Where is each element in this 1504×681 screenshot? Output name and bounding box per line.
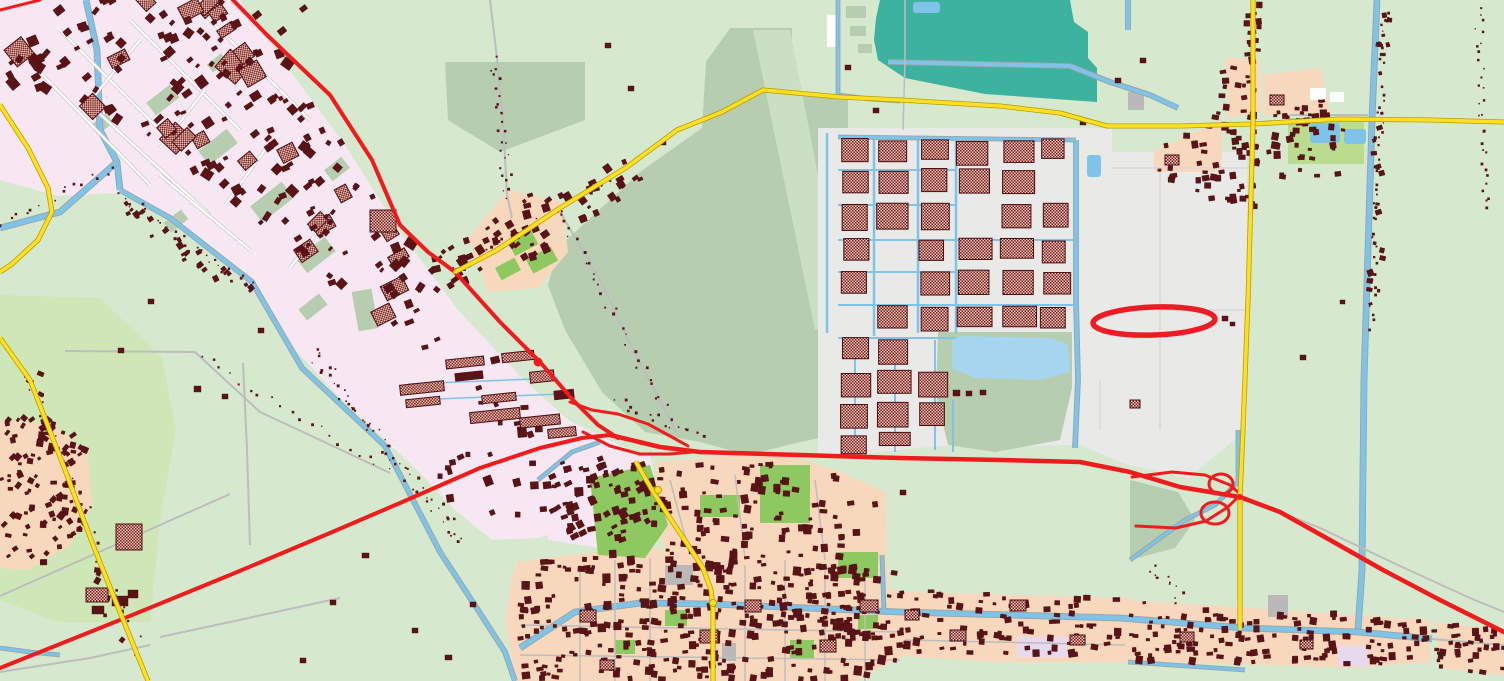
trees-village-n-tree (504, 130, 507, 133)
industrial-building (921, 307, 948, 331)
building (1070, 635, 1085, 645)
village-bottom-east-building (1473, 652, 1479, 658)
village-ne-north-building (1246, 13, 1252, 18)
town1-ext-building (521, 405, 529, 410)
town2-core-building (637, 564, 643, 568)
trees-right-edge-tree (1482, 19, 1485, 22)
town2-ribbon-building (750, 615, 754, 618)
industrial-building (1002, 205, 1031, 228)
town2-core-building (556, 657, 562, 662)
village-bottom-east-building (1472, 628, 1479, 636)
town2-nw-building (696, 537, 701, 541)
building (1115, 78, 1121, 83)
sage-teal-rect-1 (846, 6, 866, 18)
trees-interchange-tree (657, 414, 660, 417)
village-ne-building (1255, 158, 1260, 163)
trees-town1-canal-tree (183, 235, 185, 237)
village-bottom-building (1247, 621, 1252, 625)
village-bottom-east-building (1490, 635, 1494, 639)
yellowroad-ribbon-building (62, 483, 66, 487)
village-ne-north-building (1244, 52, 1250, 56)
industrial-building (1003, 306, 1037, 327)
town2-core-building (623, 574, 627, 578)
town2-east-building (818, 620, 824, 623)
village-bottom-building (1174, 635, 1179, 639)
village-bottom-east-building (1491, 647, 1496, 651)
town1-ext-building (515, 512, 520, 517)
trees-town1-canal-tree (227, 270, 229, 272)
town2-core-building (557, 669, 562, 672)
village-bottom-building (1340, 617, 1347, 622)
trees-canal-se-tree (422, 487, 424, 489)
town1-ext-building (466, 452, 470, 457)
map-canvas[interactable] (0, 0, 1504, 681)
trees-village-se-tree (634, 350, 637, 353)
trees-town1-canal-tree (252, 282, 254, 284)
town2-nw-building (853, 529, 860, 536)
trees-village-se-tree (584, 251, 587, 254)
village-ne-building (1328, 124, 1334, 131)
white-glasshouse-3 (1330, 92, 1344, 102)
trees-canalb-tree (1377, 165, 1379, 167)
town2-ribbon-building (1083, 595, 1090, 600)
town2-east-building (858, 577, 865, 581)
trees-village-n-tree (500, 150, 502, 152)
trees-canalb-tree (1378, 136, 1380, 138)
trees-village-n-tree (490, 70, 492, 72)
village-bottom-building (1380, 657, 1387, 662)
canalb-farms-building (1381, 34, 1385, 37)
trees-canal-west-tree (54, 200, 56, 202)
trees-town1-canal-tree (147, 217, 148, 218)
building (194, 386, 201, 392)
town2-east-building (701, 667, 708, 673)
town2-east-building (750, 583, 756, 590)
town2-east-building (725, 640, 731, 646)
trees-village-n-tree (500, 112, 502, 114)
building (845, 65, 851, 70)
trees-canalb-tree (1373, 202, 1375, 204)
village-bottom-east-building (1483, 626, 1488, 632)
town2-nw-building (750, 528, 753, 531)
town2-nw-building (666, 549, 669, 552)
village-bottom-building (1219, 638, 1225, 643)
building (1140, 58, 1146, 63)
town1-ext-building (449, 459, 456, 465)
suburb-building (67, 534, 73, 539)
industrial-building (841, 272, 866, 294)
town1-ext-building (446, 494, 454, 503)
town2-nw-building (696, 462, 704, 467)
village-bottom-building (1251, 660, 1255, 664)
town2-nw-building (741, 541, 748, 548)
trees-canal-se-tree (379, 429, 381, 431)
trees-village-n-tree (495, 87, 497, 89)
trees-right-edge-tree (1477, 50, 1480, 53)
town2-nw-building (771, 581, 775, 585)
trees-canal-west-tree (38, 205, 39, 206)
town2-core-building (546, 605, 550, 608)
town2-ribbon-building (1033, 649, 1040, 656)
village-bottom-building (1163, 648, 1167, 651)
town2-core-building (677, 584, 684, 590)
town2-east-building (838, 591, 845, 597)
town2-west-building (644, 490, 650, 497)
pond-industrial (952, 336, 1070, 380)
town2-west-building (604, 470, 609, 475)
town2-nw-building (651, 521, 657, 527)
town2-core-building (636, 569, 641, 573)
town2-nw-building (757, 560, 761, 563)
town2-east-building (792, 609, 795, 612)
suburb-building (69, 442, 76, 449)
trees-canalb-tree (1374, 286, 1377, 289)
village-ne-building (1208, 195, 1215, 201)
trees-canal-west-tree (96, 177, 99, 180)
trees-canalb-tree (1383, 94, 1386, 97)
town2-core-building (672, 592, 678, 596)
town2-east-building (705, 675, 709, 678)
town2-ribbon-building (862, 594, 865, 597)
town2-nw-building (670, 552, 674, 555)
building (953, 390, 960, 396)
trees-canal-se-tree (312, 362, 313, 363)
village-ne-north-building (1257, 24, 1262, 29)
village-bottom-building (1176, 650, 1181, 653)
trees-canalb-tree (1376, 262, 1379, 265)
trees-right-edge-tree (1481, 142, 1484, 145)
suburb-building (23, 533, 28, 536)
town2-east-building (737, 607, 741, 610)
trees-field-road-tree (201, 356, 203, 358)
topographic-map-viewport[interactable] (0, 0, 1504, 681)
town2-core-building (563, 566, 566, 569)
village-bottom-east-building (1456, 654, 1461, 657)
town1-ext-building (535, 427, 542, 433)
town2-nw-building (811, 568, 814, 571)
village-bottom-building (1158, 616, 1162, 619)
trees-field-road-tree (292, 411, 295, 414)
trees-right-edge-tree (1482, 31, 1484, 33)
town2-east-building (761, 563, 766, 566)
village-bottom-building (1416, 619, 1421, 623)
trees-canalb-tree (1383, 100, 1385, 102)
industrial-building (1042, 139, 1064, 159)
village-bottom-building (1292, 660, 1298, 664)
sage-teal-rect-2 (850, 26, 866, 36)
village-bottom-building (1234, 658, 1241, 665)
village-ne-building (1320, 110, 1327, 118)
town2-core-building (676, 572, 682, 578)
building (600, 660, 614, 670)
village-bottom-building (1327, 648, 1332, 651)
town2-west-building (563, 502, 568, 506)
town2-nw-building (758, 486, 766, 495)
town2-ribbon-building (718, 608, 722, 612)
village-bottom-building (1423, 635, 1429, 640)
trees-field-road-tree (255, 394, 258, 397)
trees-field-road-tree (250, 390, 252, 392)
trees-town1-canal-tree (117, 192, 119, 194)
industrial-building (842, 338, 868, 359)
trees-town1-canal-tree (174, 237, 177, 240)
town2-east-building (871, 632, 875, 635)
village-bottom-building (1264, 654, 1271, 658)
town2-core-building (647, 647, 652, 650)
town2-core-building (602, 583, 605, 586)
village-ne-building (1318, 100, 1322, 103)
town2-ribbon-building (718, 596, 723, 602)
industrial-building (922, 140, 949, 159)
industrial-building (842, 138, 868, 161)
trees-canal-se-tree (348, 403, 351, 406)
town2-ribbon-building (905, 627, 910, 632)
town2-ribbon-building (981, 631, 987, 635)
building (300, 658, 306, 663)
village-bottom-building (1193, 650, 1198, 655)
canalb-farms-building (1377, 289, 1380, 292)
town2-ribbon-building (933, 594, 938, 598)
industrial-building (959, 238, 992, 259)
trees-village-n-tree (495, 68, 497, 70)
trees-town1-canal-tree (138, 212, 141, 215)
town2-nw-building (839, 535, 845, 539)
town2-east-building (848, 565, 857, 574)
town2-core-building (658, 585, 667, 593)
trees-village-se-tree (593, 278, 595, 280)
trees-yellow-left-tree (85, 512, 86, 513)
village-ne-building (1242, 142, 1249, 149)
village-bottom-building (1148, 653, 1152, 657)
trees-canalb-tree (1375, 188, 1378, 191)
village-bottom-building (1245, 637, 1251, 641)
trees-right-edge-tree (1483, 68, 1485, 70)
town2-core-building (688, 631, 694, 634)
trees-village-sw-tree (1168, 576, 1170, 578)
trees-canalb-tree (1378, 159, 1380, 161)
village-ne-building (1319, 104, 1323, 108)
trees-right-edge-tree (1480, 14, 1481, 15)
trees-village-n-tree (501, 141, 503, 143)
town2-core-building (635, 640, 641, 646)
village-bottom-building (1343, 633, 1349, 639)
town2-core-building (584, 603, 591, 610)
village-bottom-building (1309, 617, 1317, 625)
trees-village-se-tree (657, 396, 659, 398)
village-bottom-east-building (1484, 644, 1489, 650)
town2-ribbon-building (1004, 617, 1011, 624)
town2-west-building (621, 491, 629, 497)
town2-core-building (668, 566, 673, 572)
town2-nw-building (872, 501, 878, 507)
town2-core-building (524, 596, 531, 604)
village-ne-building (1239, 155, 1246, 160)
town2-core-building (562, 627, 567, 632)
trees-right-edge-tree (1487, 197, 1490, 200)
trees-interchange-tree (629, 406, 632, 409)
sage-teal-rect-3 (858, 44, 872, 53)
town2-ribbon-building (977, 635, 981, 639)
village-ne-building (1242, 84, 1246, 88)
town2-core-building (522, 672, 531, 680)
town2-core-building (518, 603, 524, 607)
town2-nw-building (702, 491, 705, 494)
trees-village-se-tree (615, 307, 617, 309)
village-ne-building (1158, 169, 1161, 172)
white-glasshouse-2 (1310, 88, 1326, 100)
building (445, 655, 452, 660)
town2-nw-building (787, 550, 791, 553)
town2-east-building (808, 593, 812, 596)
trees-interchange-tree (669, 427, 670, 428)
village-bottom-east-building (1432, 629, 1437, 632)
trees-town1-canal-tree (206, 255, 208, 257)
town2-ribbon-building (854, 613, 860, 619)
trees-canal-se-tree (337, 384, 340, 387)
building (820, 640, 836, 652)
village-bottom-building (1217, 614, 1224, 621)
trees-town1-canal-tree (250, 287, 252, 289)
village-ne-building (1199, 142, 1206, 147)
trees-canal-west-tree (92, 174, 94, 176)
trees-canalb-tree (1376, 184, 1379, 187)
town2-nw-building (792, 487, 800, 493)
trees-interchange-tree (652, 419, 654, 421)
trees-yellow-left-tree (39, 415, 41, 417)
town2-nw-building (831, 473, 837, 479)
town2-core-building (637, 587, 641, 591)
town2-core-building (698, 584, 703, 588)
village-ne-building (1225, 197, 1229, 201)
town2-east-building (777, 598, 782, 603)
trees-village-n-tree (507, 188, 510, 191)
village-bottom-building (1422, 629, 1427, 634)
building (745, 600, 761, 612)
town2-nw-building (779, 535, 785, 542)
trees-canal-se-tree (338, 398, 340, 400)
town2-east-building (728, 629, 735, 637)
village-ne-building (1230, 130, 1236, 135)
town2-core-building (682, 650, 688, 654)
town2-east-building (779, 602, 787, 611)
town2-core-building (522, 581, 530, 589)
trees-canalb-tree (1371, 278, 1373, 280)
village-bottom-building (1344, 661, 1351, 666)
village-ne-north-building (1256, 48, 1261, 51)
village-ne-building (1280, 173, 1284, 177)
trees-town1-canal-tree (208, 262, 209, 263)
village-ne-building (1274, 151, 1281, 159)
town2-ribbon-building (967, 650, 974, 654)
trees-interchange-tree (625, 399, 628, 402)
village-bottom-east-building (1479, 639, 1482, 643)
village-bottom-building (1402, 637, 1406, 640)
trees-village-n-tree (495, 106, 498, 109)
trees-canal-se-tree (369, 423, 371, 425)
town2-ribbon-building (782, 594, 786, 599)
town2-core-building (642, 625, 649, 630)
village-ne-building (1298, 168, 1302, 172)
village-bottom-building (1214, 648, 1218, 652)
town2-core-building (681, 614, 688, 619)
lavender-2 (1338, 646, 1368, 666)
town2-core-building (535, 582, 543, 589)
town2-core-building (573, 653, 577, 656)
village-bottom-east-building (1437, 659, 1440, 662)
town2-ribbon-building (963, 642, 966, 646)
town2-nw-building (818, 528, 823, 533)
town2-ribbon-building (1074, 603, 1079, 608)
trees-canalb-tree (1387, 17, 1389, 19)
village-bottom-east-building (1452, 623, 1459, 628)
town2-core-building (672, 657, 679, 664)
town2-nw-building (812, 503, 818, 508)
trees-village-se-tree (635, 367, 637, 369)
town2-ribbon-building (1006, 635, 1011, 640)
town2-east-building (864, 570, 868, 575)
trees-town1-canal-tree (175, 230, 177, 232)
suburb-building (10, 437, 16, 443)
town2-nw-building (821, 544, 828, 552)
trees-town1-canal-tree (200, 251, 202, 253)
town2-core-building (616, 655, 621, 658)
trees-right-edge-tree (1482, 149, 1484, 151)
trees-canal-se-tree (317, 348, 319, 350)
trees-village-sw-tree (1182, 591, 1185, 594)
village-bottom-building (1313, 657, 1318, 660)
town2-east-building (845, 590, 851, 594)
canalb-farms-building (1374, 136, 1377, 140)
trees-canal-se-tree (453, 533, 455, 535)
trees-yellow-left-tree (79, 492, 82, 495)
town2-ribbon-building (920, 635, 924, 639)
village-bottom-building (1148, 625, 1152, 630)
town2-nw-building (819, 500, 826, 507)
trees-yellow-diag-tree (486, 249, 488, 251)
town2-nw-building (761, 555, 765, 558)
village-bottom-building (1381, 649, 1384, 652)
canalb-farms-building (1380, 53, 1385, 56)
town2-nw-building (838, 544, 845, 548)
trees-yellow-diag-tree (561, 210, 563, 212)
town2-ribbon-building (1025, 646, 1030, 651)
trees-canal-se-tree (394, 463, 396, 465)
town2-core-building (617, 562, 623, 568)
town2-core-building (582, 557, 586, 562)
village-ne-building (1183, 133, 1190, 139)
town2-east-building (718, 663, 722, 666)
town2-core-building (651, 670, 657, 677)
trees-village-se-tree (567, 236, 568, 237)
village-bottom-building (1177, 643, 1182, 647)
trees-field-road-tree (321, 426, 322, 427)
town2-core-building (547, 620, 551, 623)
town2-nw-building (721, 536, 729, 542)
industrial-building (1003, 171, 1035, 194)
pond-ind-small (1087, 155, 1101, 177)
village-ne-building (1241, 95, 1247, 100)
trees-yellow-diag-tree (513, 230, 516, 233)
trees-yellow-left-tree (95, 561, 97, 563)
village-bottom-east-building (1479, 670, 1486, 675)
town2-core-building (623, 641, 630, 647)
town2-ribbon-building (915, 598, 919, 601)
trees-village-n-tree (503, 190, 504, 191)
village-bottom-east-building (1468, 659, 1473, 663)
town2-core-building (552, 594, 556, 598)
village-bottom-building (1277, 612, 1284, 620)
town2-ribbon-building (1054, 613, 1060, 617)
